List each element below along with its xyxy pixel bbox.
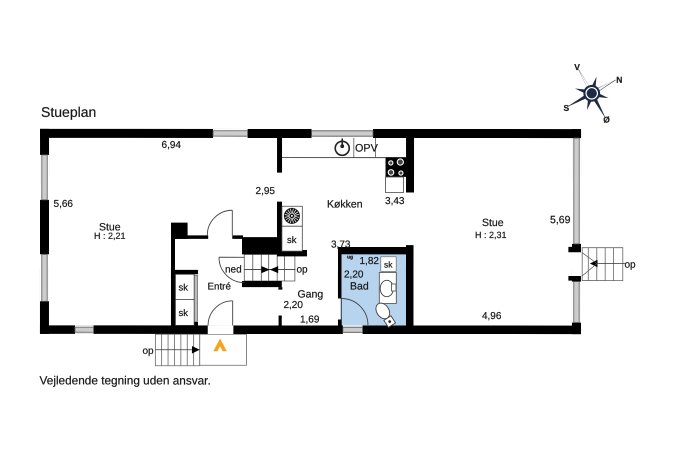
svg-text:V: V (574, 62, 580, 72)
svg-text:sk: sk (178, 308, 188, 319)
svg-text:op: op (142, 346, 154, 357)
svg-text:ug: ug (347, 255, 353, 261)
svg-text:S: S (564, 103, 570, 113)
svg-text:H : 2,21: H : 2,21 (94, 231, 126, 241)
svg-text:OPV: OPV (355, 143, 379, 155)
svg-text:sk: sk (178, 282, 188, 293)
svg-text:Køkken: Køkken (327, 198, 363, 210)
svg-text:Ø: Ø (603, 115, 610, 125)
svg-text:N: N (616, 75, 622, 85)
svg-text:op: op (624, 260, 636, 271)
svg-text:H : 2,31: H : 2,31 (475, 230, 507, 240)
svg-text:sk: sk (384, 260, 393, 270)
svg-text:6,94: 6,94 (162, 140, 182, 151)
svg-text:5,69: 5,69 (550, 214, 571, 226)
svg-text:Stue: Stue (482, 217, 504, 229)
svg-text:2,20: 2,20 (344, 270, 364, 281)
svg-text:op: op (296, 264, 308, 275)
svg-text:Vejledende tegning uden ansvar: Vejledende tegning uden ansvar. (40, 373, 211, 387)
svg-text:3,43: 3,43 (385, 196, 405, 207)
svg-text:Bad: Bad (350, 281, 369, 293)
svg-text:2,95: 2,95 (256, 186, 276, 197)
svg-text:4,96: 4,96 (482, 311, 502, 322)
svg-text:Gang: Gang (297, 288, 323, 300)
svg-text:1,82: 1,82 (359, 256, 379, 267)
svg-text:5,66: 5,66 (54, 199, 74, 210)
svg-text:sk: sk (287, 235, 297, 246)
svg-text:Entré: Entré (207, 281, 231, 292)
svg-text:Stueplan: Stueplan (41, 104, 96, 120)
svg-text:3,73: 3,73 (331, 239, 351, 250)
svg-text:2,20: 2,20 (283, 300, 303, 311)
svg-text:1,69: 1,69 (300, 314, 320, 325)
svg-text:ned: ned (225, 264, 242, 275)
